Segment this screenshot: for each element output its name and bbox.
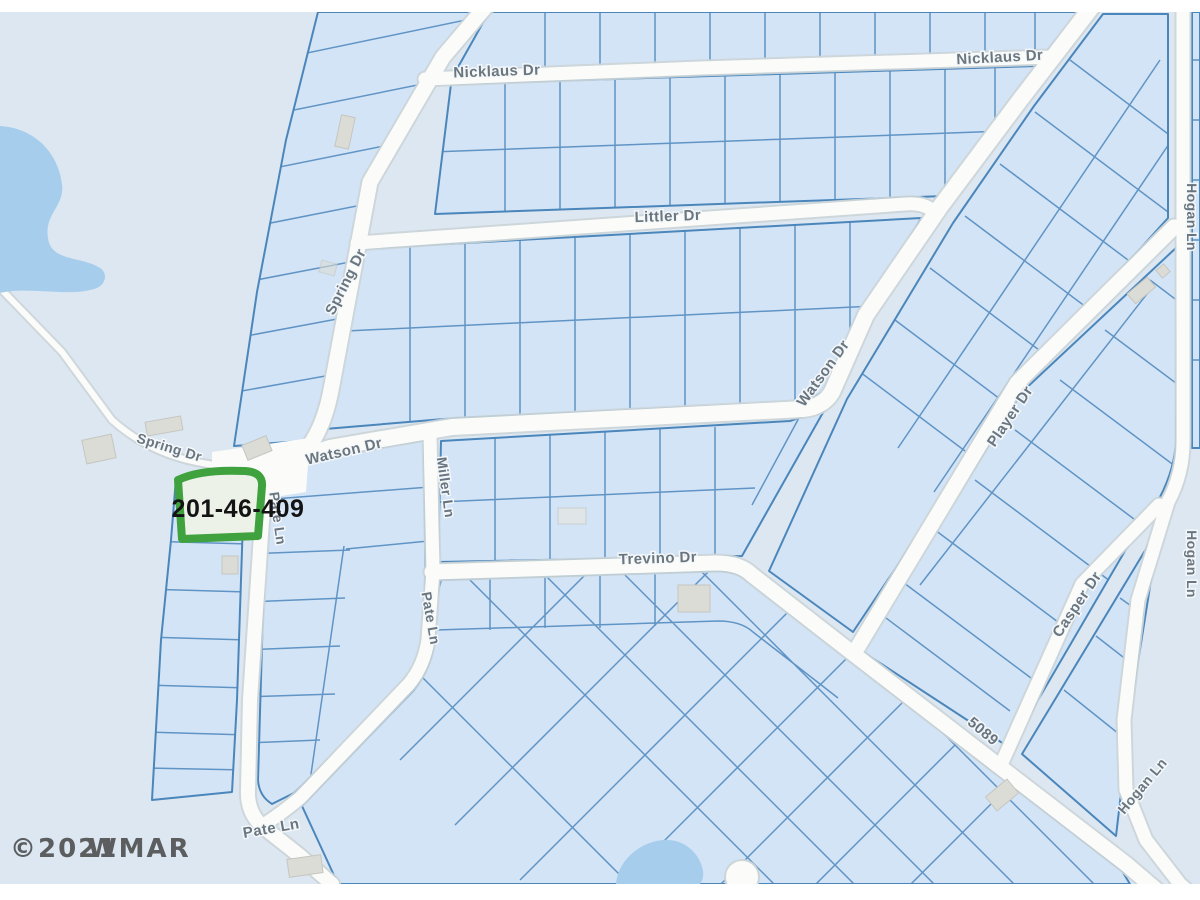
street-label-nicklaus-w: Nicklaus Dr [453,61,540,81]
parcel-map[interactable]: Nicklaus Dr Nicklaus Dr Littler Dr Watso… [0,0,1200,900]
letterbox-bottom [0,884,1200,900]
building-icon [678,585,710,612]
parcel-apn-label: 201-46-409 [172,495,305,523]
watermark-name: WMAR [88,834,191,864]
building-icon [222,556,238,574]
parcel-map-canvas: Nicklaus Dr Nicklaus Dr Littler Dr Watso… [0,0,1200,900]
street-label-littler: Littler Dr [634,207,701,226]
watermark: ©2021WMAR [10,834,191,864]
letterbox-top [0,0,1200,12]
building-icon [558,508,586,524]
street-label-hogan-mid: Hogan Ln [1184,530,1200,598]
street-label-hogan-top: Hogan Ln [1184,183,1200,251]
street-label-trevino: Trevino Dr [618,549,697,569]
